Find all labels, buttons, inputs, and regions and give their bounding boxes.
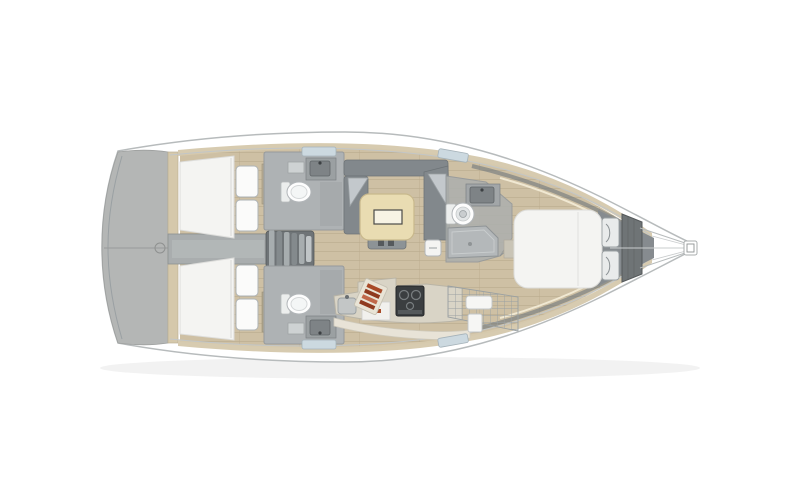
toilet-drain	[460, 211, 467, 218]
pillow-icon	[236, 200, 258, 231]
seat-bench	[466, 296, 492, 309]
floorplan-svg	[0, 0, 800, 500]
bed-icon	[180, 156, 234, 238]
stove-controls	[398, 310, 422, 314]
companionway	[168, 230, 314, 268]
faucet-icon	[318, 331, 321, 334]
shower-drain	[468, 242, 472, 246]
hatch-icon	[288, 162, 304, 173]
stair-tread	[292, 233, 298, 265]
pillow-icon	[602, 218, 619, 247]
sink-icon	[338, 298, 356, 314]
pillow-icon	[236, 265, 258, 296]
hull-shadow	[100, 357, 700, 379]
yacht-floorplan-canvas	[0, 0, 800, 500]
faucet-icon	[345, 295, 349, 299]
window-icon	[302, 340, 336, 349]
pillow-icon	[236, 299, 258, 330]
stern-swim-platform	[102, 150, 168, 345]
pillow-icon	[602, 251, 619, 280]
corridor-highlight	[172, 240, 264, 258]
aft-head-bottom	[264, 266, 344, 344]
stair-tread	[306, 236, 312, 262]
toilet-seat	[291, 186, 307, 199]
pillow-icon	[236, 166, 258, 197]
locker-front	[468, 314, 482, 332]
forward-cabin	[504, 210, 654, 288]
bed-icon	[180, 258, 234, 340]
stair-tread	[277, 231, 283, 267]
faucet-icon	[318, 161, 321, 164]
toilet-seat	[291, 298, 307, 311]
faucet-icon	[480, 188, 483, 191]
stair-tread	[284, 232, 290, 266]
cabin-step	[504, 240, 514, 258]
stair-tread	[299, 234, 305, 264]
shower-icon	[320, 182, 342, 226]
table-inlay	[374, 210, 402, 224]
bed-icon	[514, 210, 602, 288]
stair-tread	[269, 230, 275, 268]
aft-head-top	[264, 152, 344, 230]
bow-fitting-icon	[684, 241, 697, 255]
hatch-icon	[288, 323, 304, 334]
window-icon	[302, 147, 336, 156]
